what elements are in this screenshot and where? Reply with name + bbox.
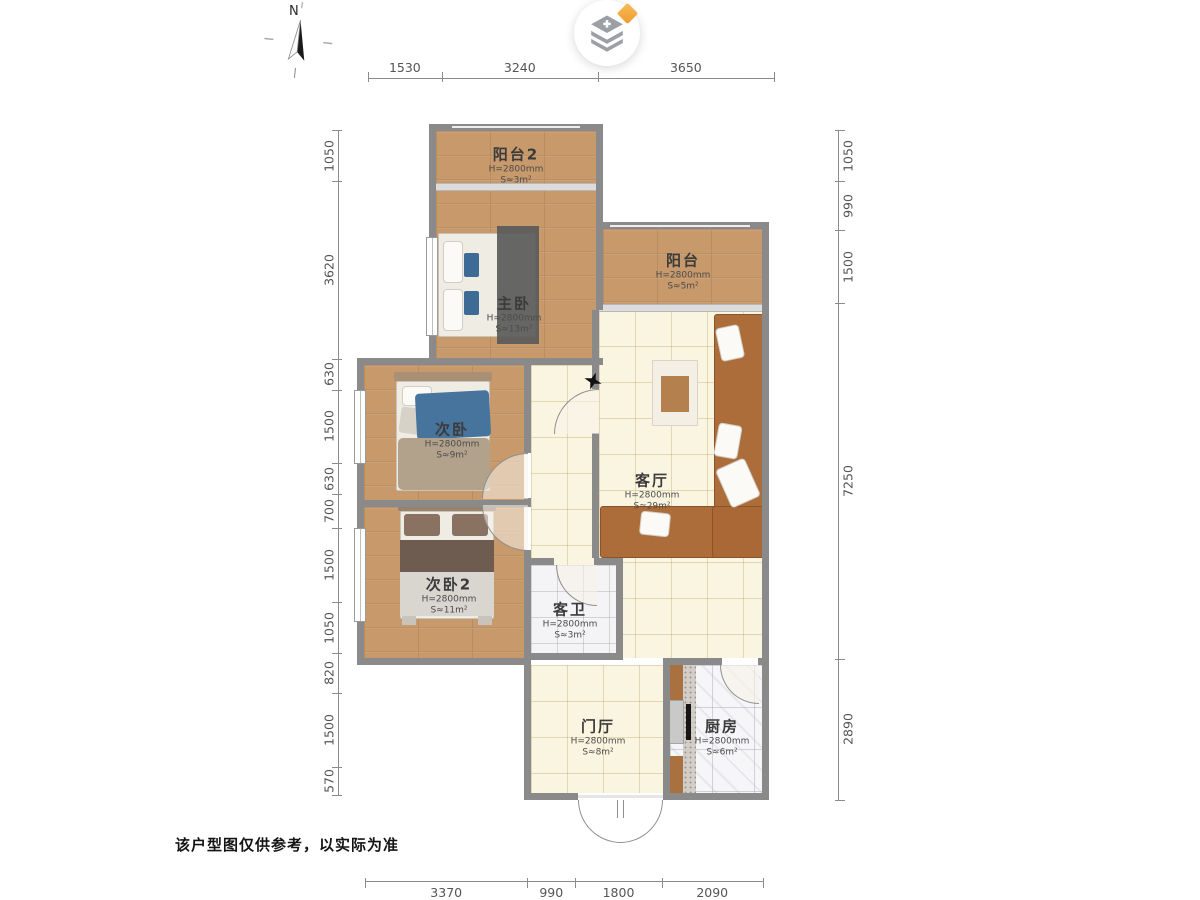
master-pillow <box>443 289 463 331</box>
dimension-line-bottom: 337099018002090 <box>365 881 763 900</box>
room-name: 客卫 <box>543 600 598 619</box>
wall <box>524 793 578 800</box>
dimension-label: 630 <box>322 362 337 386</box>
master-cushion <box>464 253 479 277</box>
window-bedroom2 <box>354 390 366 464</box>
wall <box>663 658 722 665</box>
room-height: H=2800mm <box>425 439 480 450</box>
bedroom2-headboard <box>394 372 492 381</box>
wall <box>663 793 769 800</box>
compass-north-icon: N <box>256 2 340 86</box>
room-area: S≈3m² <box>543 630 598 641</box>
window-balcony <box>610 225 750 227</box>
dimension-label: 1050 <box>841 140 856 172</box>
room-height: H=2800mm <box>489 164 544 175</box>
dimension-label: 1500 <box>322 411 337 443</box>
dimension-label: 990 <box>527 885 575 900</box>
wall <box>524 550 531 665</box>
room-height: H=2800mm <box>571 736 626 747</box>
room-area: S≈9m² <box>425 450 480 461</box>
stacked-layers-icon <box>587 13 627 53</box>
dimension-label: 1050 <box>322 612 337 644</box>
dimension-label: 1500 <box>322 549 337 581</box>
wall <box>524 558 554 565</box>
dimension-label: 630 <box>322 467 337 491</box>
room-area: S≈5m² <box>656 281 711 292</box>
room-name: 门厅 <box>571 717 626 736</box>
room-name: 次卧2 <box>422 575 477 594</box>
dimension-label: 3370 <box>365 885 527 900</box>
dimension-label: 1800 <box>575 885 662 900</box>
dimension-label: 1530 <box>368 60 442 75</box>
master-cushion <box>464 291 479 315</box>
room-name: 主卧 <box>487 294 542 313</box>
wall <box>596 124 603 310</box>
wall <box>357 358 603 365</box>
dimension-label: 2090 <box>662 885 763 900</box>
bedroom3-pillow <box>452 514 488 536</box>
dimension-label: 990 <box>841 194 856 218</box>
room-height: H=2800mm <box>543 619 598 630</box>
wall <box>524 660 531 800</box>
sofa-corner <box>712 506 764 558</box>
room-height: H=2800mm <box>422 594 477 605</box>
window-bedroom3 <box>354 528 366 622</box>
dimension-label: 7250 <box>841 465 856 497</box>
wall <box>616 558 623 660</box>
room-area: S≈29m² <box>625 501 680 512</box>
wall <box>592 433 599 558</box>
room-height: H=2800mm <box>695 736 750 747</box>
balcony-sill <box>599 304 762 312</box>
bedroom3-blanket <box>400 540 494 572</box>
window-master <box>426 237 438 336</box>
wall <box>758 658 769 665</box>
room-name: 客厅 <box>625 471 680 490</box>
room-name: 阳台2 <box>489 145 544 164</box>
dimension-label: 3240 <box>442 60 598 75</box>
dimension-label: 1500 <box>322 714 337 746</box>
room-label-bath: 客卫 H=2800mm S≈3m² <box>543 600 598 641</box>
room-area: S≈8m² <box>571 747 626 758</box>
dimension-label: 570 <box>322 769 337 793</box>
sofa-pillow <box>639 510 671 537</box>
room-height: H=2800mm <box>625 490 680 501</box>
kitchen-cabinet <box>670 756 683 793</box>
bedroom3-pillow <box>404 514 440 536</box>
dimension-label: 3620 <box>322 254 337 286</box>
wall <box>357 658 531 665</box>
dimension-label: 1050 <box>322 140 337 172</box>
room-label-balcony: 阳台 H=2800mm S≈5m² <box>656 251 711 292</box>
dimension-line-left: 105036206301500630700150010508201500570 <box>320 130 339 795</box>
room-area: S≈11m² <box>422 605 477 616</box>
dimension-label: 2890 <box>841 714 856 746</box>
room-area: S≈6m² <box>695 747 750 758</box>
room-label-bedroom3: 次卧2 H=2800mm S≈11m² <box>422 575 477 616</box>
room-height: H=2800mm <box>487 313 542 324</box>
room-label-living: 客厅 H=2800mm S≈29m² <box>625 471 680 512</box>
room-height: H=2800mm <box>656 270 711 281</box>
bedroom3-foot <box>402 616 416 625</box>
dimension-label: 1500 <box>841 251 856 283</box>
dimension-line-top: 153032403650 <box>368 62 774 79</box>
room-name: 阳台 <box>656 251 711 270</box>
room-area: S≈3m² <box>489 175 544 186</box>
room-label-kitchen: 厨房 H=2800mm S≈6m² <box>695 717 750 758</box>
floorplan-page: 阳台2 H=2800mm S≈3m² 主卧 H=2800mm S≈13m² 阳台… <box>0 0 1200 900</box>
entry-door-left-arc <box>578 800 621 843</box>
coffee-table-top <box>661 376 689 412</box>
room-label-foyer: 门厅 H=2800mm S≈8m² <box>571 717 626 758</box>
dimension-label: 820 <box>322 661 337 685</box>
window-balcony2 <box>452 126 580 128</box>
dimension-label: 3650 <box>598 60 774 75</box>
compass-north-label: N <box>289 4 299 19</box>
disclaimer-text: 该户型图仅供参考，以实际为准 <box>175 834 399 855</box>
room-name: 厨房 <box>695 717 750 736</box>
entry-door-leaf <box>617 800 618 818</box>
entry-threshold <box>578 795 663 798</box>
room-name: 次卧 <box>425 420 480 439</box>
master-pillow <box>443 241 463 283</box>
bedroom3-foot <box>478 616 492 625</box>
wall <box>524 365 531 453</box>
dimension-line-right: 1050990150072502890 <box>838 130 857 800</box>
room-label-balcony2: 阳台2 H=2800mm S≈3m² <box>489 145 544 186</box>
wall <box>663 658 670 800</box>
room-label-bedroom2: 次卧 H=2800mm S≈9m² <box>425 420 480 461</box>
kitchen-sliding-door <box>686 704 691 740</box>
entry-door-leaf <box>623 800 624 818</box>
room-label-master: 主卧 H=2800mm S≈13m² <box>487 294 542 335</box>
room-area: S≈13m² <box>487 324 542 335</box>
wall <box>762 222 769 800</box>
wall <box>524 653 623 660</box>
dimension-label: 700 <box>322 499 337 523</box>
entry-door-right-arc <box>620 800 663 843</box>
